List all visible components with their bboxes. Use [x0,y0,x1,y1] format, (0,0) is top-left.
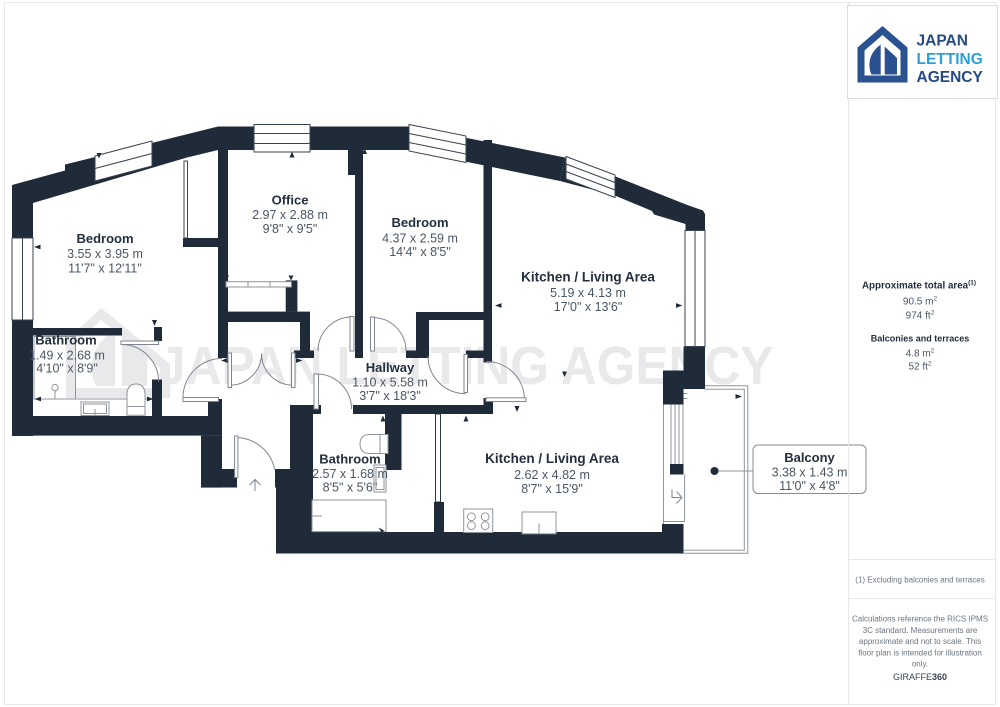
svg-text:(1) Excluding balconies and te: (1) Excluding balconies and terraces [855,576,984,585]
svg-text:1.10 x 5.58 m: 1.10 x 5.58 m [352,376,428,390]
svg-text:AGENCY: AGENCY [917,69,984,86]
svg-text:90.5 m2: 90.5 m2 [903,296,938,308]
svg-text:3.38 x 1.43 m: 3.38 x 1.43 m [772,466,848,480]
svg-text:974 ft2: 974 ft2 [906,310,935,322]
svg-text:Bathroom: Bathroom [35,333,96,348]
svg-text:8'7" x 15'9": 8'7" x 15'9" [521,482,583,496]
svg-text:Balconies and terraces: Balconies and terraces [871,334,970,344]
svg-text:only.: only. [912,660,928,669]
svg-text:4.37 x 2.59 m: 4.37 x 2.59 m [382,232,458,246]
svg-text:5.19 x 4.13 m: 5.19 x 4.13 m [550,286,626,300]
svg-text:Kitchen / Living Area: Kitchen / Living Area [485,451,619,466]
svg-text:Kitchen / Living Area: Kitchen / Living Area [521,270,655,285]
svg-text:GIRAFFE360: GIRAFFE360 [893,672,947,682]
svg-text:LETTING: LETTING [917,51,983,68]
svg-text:1.49 x 2.68 m: 1.49 x 2.68 m [29,349,105,363]
svg-text:Balcony: Balcony [784,450,835,465]
svg-text:3C standard. Measurements are: 3C standard. Measurements are [863,626,978,635]
svg-text:Bedroom: Bedroom [391,215,448,230]
svg-text:4.8 m2: 4.8 m2 [906,348,935,360]
svg-text:2.97 x 2.88 m: 2.97 x 2.88 m [252,208,328,222]
svg-text:8'5" x 5'6": 8'5" x 5'6" [323,481,378,495]
svg-text:Office: Office [272,193,309,208]
svg-text:floor plan is intended for ill: floor plan is intended for illustration [858,648,982,657]
svg-text:Approximate total area(1): Approximate total area(1) [862,280,976,292]
svg-text:Calculations reference the RIC: Calculations reference the RICS IPMS [852,615,988,624]
svg-text:JAPAN: JAPAN [917,33,968,50]
svg-text:17'0" x 13'6": 17'0" x 13'6" [554,300,623,314]
svg-text:2.57 x 1.68 m: 2.57 x 1.68 m [312,467,388,481]
svg-text:11'7" x 12'11": 11'7" x 12'11" [68,262,142,276]
svg-text:3.55 x 3.95 m: 3.55 x 3.95 m [67,247,143,261]
svg-text:9'8" x 9'5": 9'8" x 9'5" [263,222,318,236]
svg-text:4'10" x 8'9": 4'10" x 8'9" [36,362,98,376]
svg-text:approximate and not to scale.: approximate and not to scale. This [859,637,981,646]
svg-text:Hallway: Hallway [366,360,415,375]
svg-text:2.62 x 4.82 m: 2.62 x 4.82 m [514,468,590,482]
svg-text:Bathroom: Bathroom [319,452,380,467]
svg-text:14'4" x 8'5": 14'4" x 8'5" [389,245,451,259]
svg-text:Bedroom: Bedroom [76,231,133,246]
svg-text:3'7" x 18'3": 3'7" x 18'3" [359,389,421,403]
svg-text:11'0" x 4'8": 11'0" x 4'8" [779,479,840,493]
